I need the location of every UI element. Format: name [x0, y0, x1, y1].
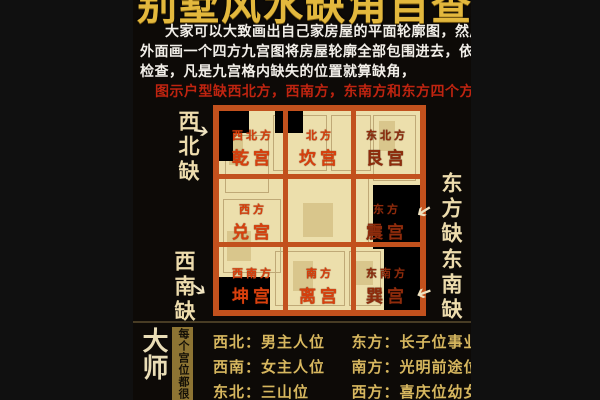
- palace-name: 乾宫: [221, 144, 285, 169]
- arrow-icon: ➔: [192, 119, 211, 143]
- palace-direction: 西南方: [221, 265, 285, 281]
- palace-name: 艮宫: [355, 144, 419, 169]
- palace-name: 坎宫: [288, 144, 352, 169]
- palace-direction: 东南方: [355, 265, 419, 281]
- palace-importance-note: 每个宫位都很重: [172, 327, 193, 400]
- tip-west: 西方：喜庆位幼女位: [351, 381, 471, 400]
- furniture-block: [303, 203, 333, 237]
- tips-row: 西北：男主人位 东方：长子位事业位: [213, 331, 471, 351]
- content-column: 别墅风水缺角自查 大家可以大致画出自己家房屋的平面轮廓图，然后轮廓 外面画一个四…: [133, 0, 471, 400]
- palace-cell-east: 东方 震宫: [355, 201, 419, 243]
- nine-palace-grid: 西北方 乾宫 北方 坎宫 东北方 艮宫 西方 兑宫 东方 震宫 西南方 坤宫 南…: [213, 105, 426, 316]
- palace-cell-west: 西方 兑宫: [221, 201, 285, 243]
- palace-direction: 东方: [355, 201, 419, 217]
- palace-direction: 东北方: [355, 127, 419, 143]
- tips-row: 东北：三山位 西方：喜庆位幼女位: [213, 381, 471, 400]
- intro-line-2: 外面画一个四方九宫图将房屋轮廓全部包围进去，依照下图: [140, 41, 471, 61]
- fengshui-infographic: { "palette": { "outer_background": "#101…: [0, 0, 600, 400]
- master-reminder-heading: 大师提醒: [138, 327, 168, 400]
- palace-name: 坤宫: [221, 282, 285, 307]
- palace-name: 震宫: [355, 218, 419, 243]
- tip-northwest: 西北：男主人位: [213, 331, 347, 352]
- tip-southwest: 西南：女主人位: [213, 356, 347, 377]
- section-divider: [133, 321, 471, 323]
- palace-direction: 西方: [221, 201, 285, 217]
- palace-cell-northeast: 东北方 艮宫: [355, 127, 419, 169]
- palace-direction: 南方: [288, 265, 352, 281]
- palace-name: 巽宫: [355, 282, 419, 307]
- palace-cell-southeast: 东南方 巽宫: [355, 265, 419, 307]
- tip-northeast: 东北：三山位: [213, 381, 347, 400]
- palace-cell-south: 南方 离宫: [288, 265, 352, 307]
- tips-row: 西南：女主人位 南方：光明前途位: [213, 356, 471, 376]
- callout-east-missing: 东方缺: [438, 172, 464, 247]
- palace-direction: 西北方: [221, 127, 285, 143]
- tip-south: 南方：光明前途位: [351, 356, 471, 377]
- palace-name: 兑宫: [221, 218, 285, 243]
- palace-cell-southwest: 西南方 坤宫: [221, 265, 285, 307]
- palace-cell-northwest: 西北方 乾宫: [221, 127, 285, 169]
- missing-corners-highlight: 图示户型缺西北方，西南方，东南方和东方四个方位。: [155, 81, 471, 101]
- tip-east: 东方：长子位事业位: [351, 331, 471, 352]
- palace-cell-north: 北方 坎宫: [288, 127, 352, 169]
- palace-name: 离宫: [288, 282, 352, 307]
- palace-direction: 北方: [288, 127, 352, 143]
- grid-line: [219, 174, 420, 179]
- intro-line-1: 大家可以大致画出自己家房屋的平面轮廓图，然后轮廓: [165, 21, 471, 41]
- intro-line-3: 检查，凡是九宫格内缺失的位置就算缺角，: [140, 61, 416, 81]
- callout-southeast-missing: 东南缺: [438, 248, 464, 323]
